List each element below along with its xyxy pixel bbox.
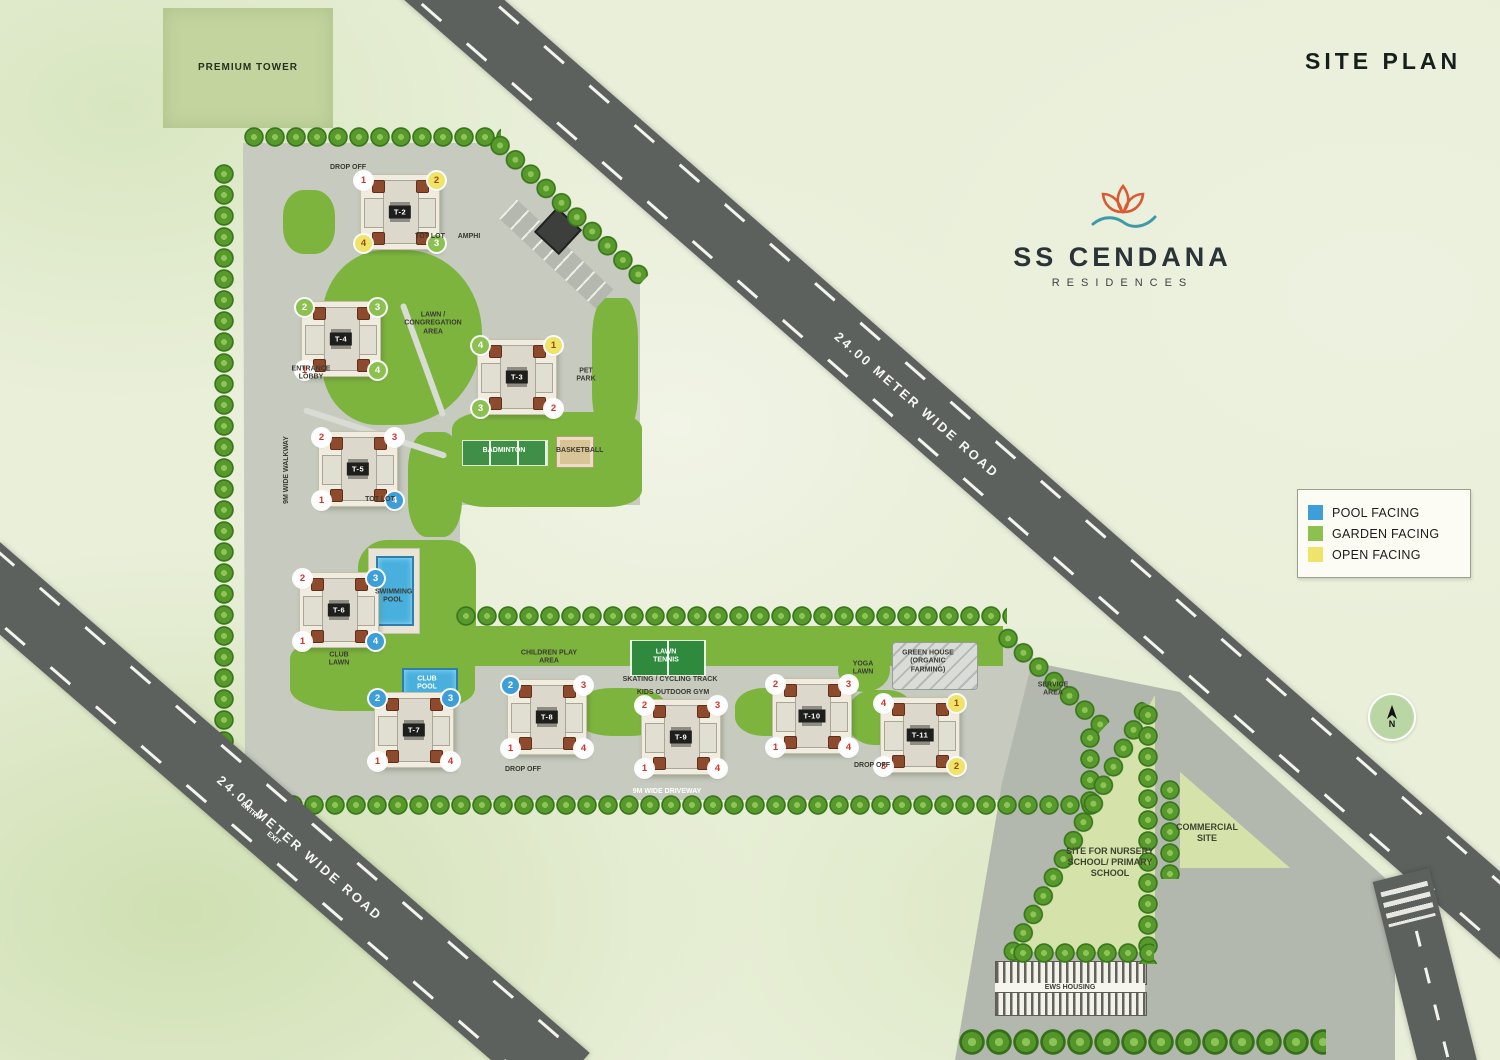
legend-item-open: OPEN FACING [1308,547,1460,562]
page-title: SITE PLAN [1305,48,1461,75]
map-label: TOT LOT [365,496,395,504]
pool-swatch [1308,505,1323,520]
tower-planter [374,437,387,450]
compass-n-label: N [1389,719,1396,729]
legend-label-open: OPEN FACING [1332,548,1421,562]
map-label: KIDS OUTDOOR GYM [637,689,709,697]
unit-circle-1: 1 [294,633,311,650]
tower-T-8: T-82314 [499,673,595,761]
map-label: LAWN / CONGREGATION AREA [401,311,465,336]
tower-planter [355,578,368,591]
tower-planter [563,685,576,698]
unit-circle-3: 3 [442,690,459,707]
legend-item-pool: POOL FACING [1308,505,1460,520]
tower-planter [489,397,502,410]
tower-planter [936,703,949,716]
unit-circle-4: 4 [355,235,372,252]
tower-planter [330,489,343,502]
unit-circle-4: 4 [442,753,459,770]
tower-planter [372,232,385,245]
tower-id-chip: T-7 [403,724,425,737]
unit-circle-1: 1 [767,739,784,756]
unit-circle-3: 3 [709,697,726,714]
unit-circle-1: 1 [369,753,386,770]
unit-circle-2: 2 [636,697,653,714]
unit-circle-2: 2 [428,172,445,189]
brand-name: SS CENDANA [1000,242,1245,273]
unit-circle-3: 3 [369,299,386,316]
tower-planter [892,703,905,716]
map-label: DROP OFF [505,766,541,774]
map-label: SKATING / CYCLING TRACK [623,676,718,684]
unit-circle-1: 1 [545,337,562,354]
tower-id-chip: T-6 [328,604,350,617]
unit-circle-2: 2 [369,690,386,707]
unit-circle-3: 3 [575,677,592,694]
map-label: ENTRY [238,801,261,823]
plan-layer: T-21243T-42314T-34132T-52314T-62314T-723… [0,0,1500,1060]
tower-T-6: T-62314 [291,566,387,654]
site-plan-canvas: PREMIUM TOWER 24.00 ME [0,0,1500,1060]
unit-circle-4: 4 [367,633,384,650]
tower-planter [828,684,841,697]
tower-planter [489,345,502,358]
tower-planter [533,345,546,358]
garden-swatch [1308,526,1323,541]
tower-planter [313,307,326,320]
tower-T-3: T-34132 [469,333,565,421]
legend-items: POOL FACINGGARDEN FACINGOPEN FACING [1308,505,1460,562]
tower-T-7: T-72314 [366,686,462,774]
unit-circle-4: 4 [472,337,489,354]
map-label: 9M WIDE DRIVEWAY [633,788,702,796]
unit-circle-2: 2 [767,676,784,693]
tower-planter [330,437,343,450]
tower-planter [416,180,429,193]
brand-logo-block: SS CENDANA RESIDENCES [1000,182,1245,289]
unit-circle-1: 1 [502,740,519,757]
tower-planter [697,705,710,718]
tower-planter [519,737,532,750]
tower-planter [784,736,797,749]
map-label: AMPHI [458,233,481,241]
unit-circle-4: 4 [840,739,857,756]
map-label: SWIMMING POOL [375,589,411,606]
north-compass: N [1368,693,1416,741]
tower-T-9: T-92314 [633,693,729,781]
tower-id-chip: T-11 [907,729,934,742]
map-label: SITE FOR NURSERY SCHOOL/ PRIMARY SCHOOL [1064,846,1156,878]
unit-circle-2: 2 [545,400,562,417]
map-label: CLUB POOL [412,676,442,693]
tower-planter [430,698,443,711]
map-label: COMMERCIAL SITE [1176,822,1238,844]
tower-planter [784,684,797,697]
map-label: TOT LOT [415,233,445,241]
map-label: BADMINTON [483,447,526,455]
map-label: PET PARK [573,368,599,385]
map-label: CHILDREN PLAY AREA [520,650,578,667]
unit-circle-2: 2 [296,299,313,316]
unit-circle-4: 4 [875,695,892,712]
unit-circle-1: 1 [636,760,653,777]
unit-circle-1: 1 [313,492,330,509]
tower-planter [357,307,370,320]
tower-planter [653,705,666,718]
legend-item-garden: GARDEN FACING [1308,526,1460,541]
tower-planter [372,180,385,193]
tower-T-2: T-21243 [352,168,448,256]
tower-id-chip: T-3 [506,371,528,384]
tower-planter [311,630,324,643]
map-label: SERVICE AREA [1032,682,1074,699]
unit-circle-1: 1 [355,172,372,189]
tower-id-chip: T-8 [536,711,558,724]
tower-id-chip: T-10 [798,710,825,723]
map-label: EWS HOUSING [1045,984,1096,992]
map-label: EXIT [264,831,281,848]
map-label: CLUB LAWN [323,652,355,669]
unit-circle-2: 2 [294,570,311,587]
map-label: DROP OFF [330,164,366,172]
tower-planter [386,750,399,763]
unit-circle-4: 4 [575,740,592,757]
brand-subtitle: RESIDENCES [1000,277,1245,289]
map-label: DROP OFF [854,762,890,770]
unit-circle-3: 3 [472,400,489,417]
tower-id-chip: T-5 [347,463,369,476]
legend-label-garden: GARDEN FACING [1332,527,1439,541]
premium-tower-label: PREMIUM TOWER [198,62,298,74]
lotus-logo-icon [1085,182,1161,240]
tower-planter [311,578,324,591]
unit-circle-4: 4 [369,362,386,379]
map-label: BASKETBALL [556,447,592,455]
tower-planter [892,755,905,768]
map-label: 9M WIDE WALKWAY [283,436,291,504]
map-label: YOGA LAWN [848,661,878,678]
map-label: ENTRANCE LOBBY [290,366,332,383]
map-label: GREEN HOUSE (ORGANIC FARMING) [896,649,960,674]
unit-circle-2: 2 [948,758,965,775]
unit-circle-4: 4 [709,760,726,777]
tower-id-chip: T-4 [330,333,352,346]
legend: POOL FACINGGARDEN FACINGOPEN FACING [1297,489,1471,578]
unit-circle-2: 2 [313,429,330,446]
unit-circle-1: 1 [948,695,965,712]
unit-circle-3: 3 [386,429,403,446]
tower-planter [653,757,666,770]
map-label: LAWN TENNIS [644,649,688,666]
unit-circle-3: 3 [367,570,384,587]
tower-id-chip: T-9 [670,731,692,744]
unit-circle-3: 3 [840,676,857,693]
legend-label-pool: POOL FACING [1332,506,1420,520]
unit-circle-2: 2 [502,677,519,694]
tower-id-chip: T-2 [389,206,411,219]
open-swatch [1308,547,1323,562]
tower-planter [519,685,532,698]
tower-planter [386,698,399,711]
tower-T-10: T-102314 [764,672,860,760]
